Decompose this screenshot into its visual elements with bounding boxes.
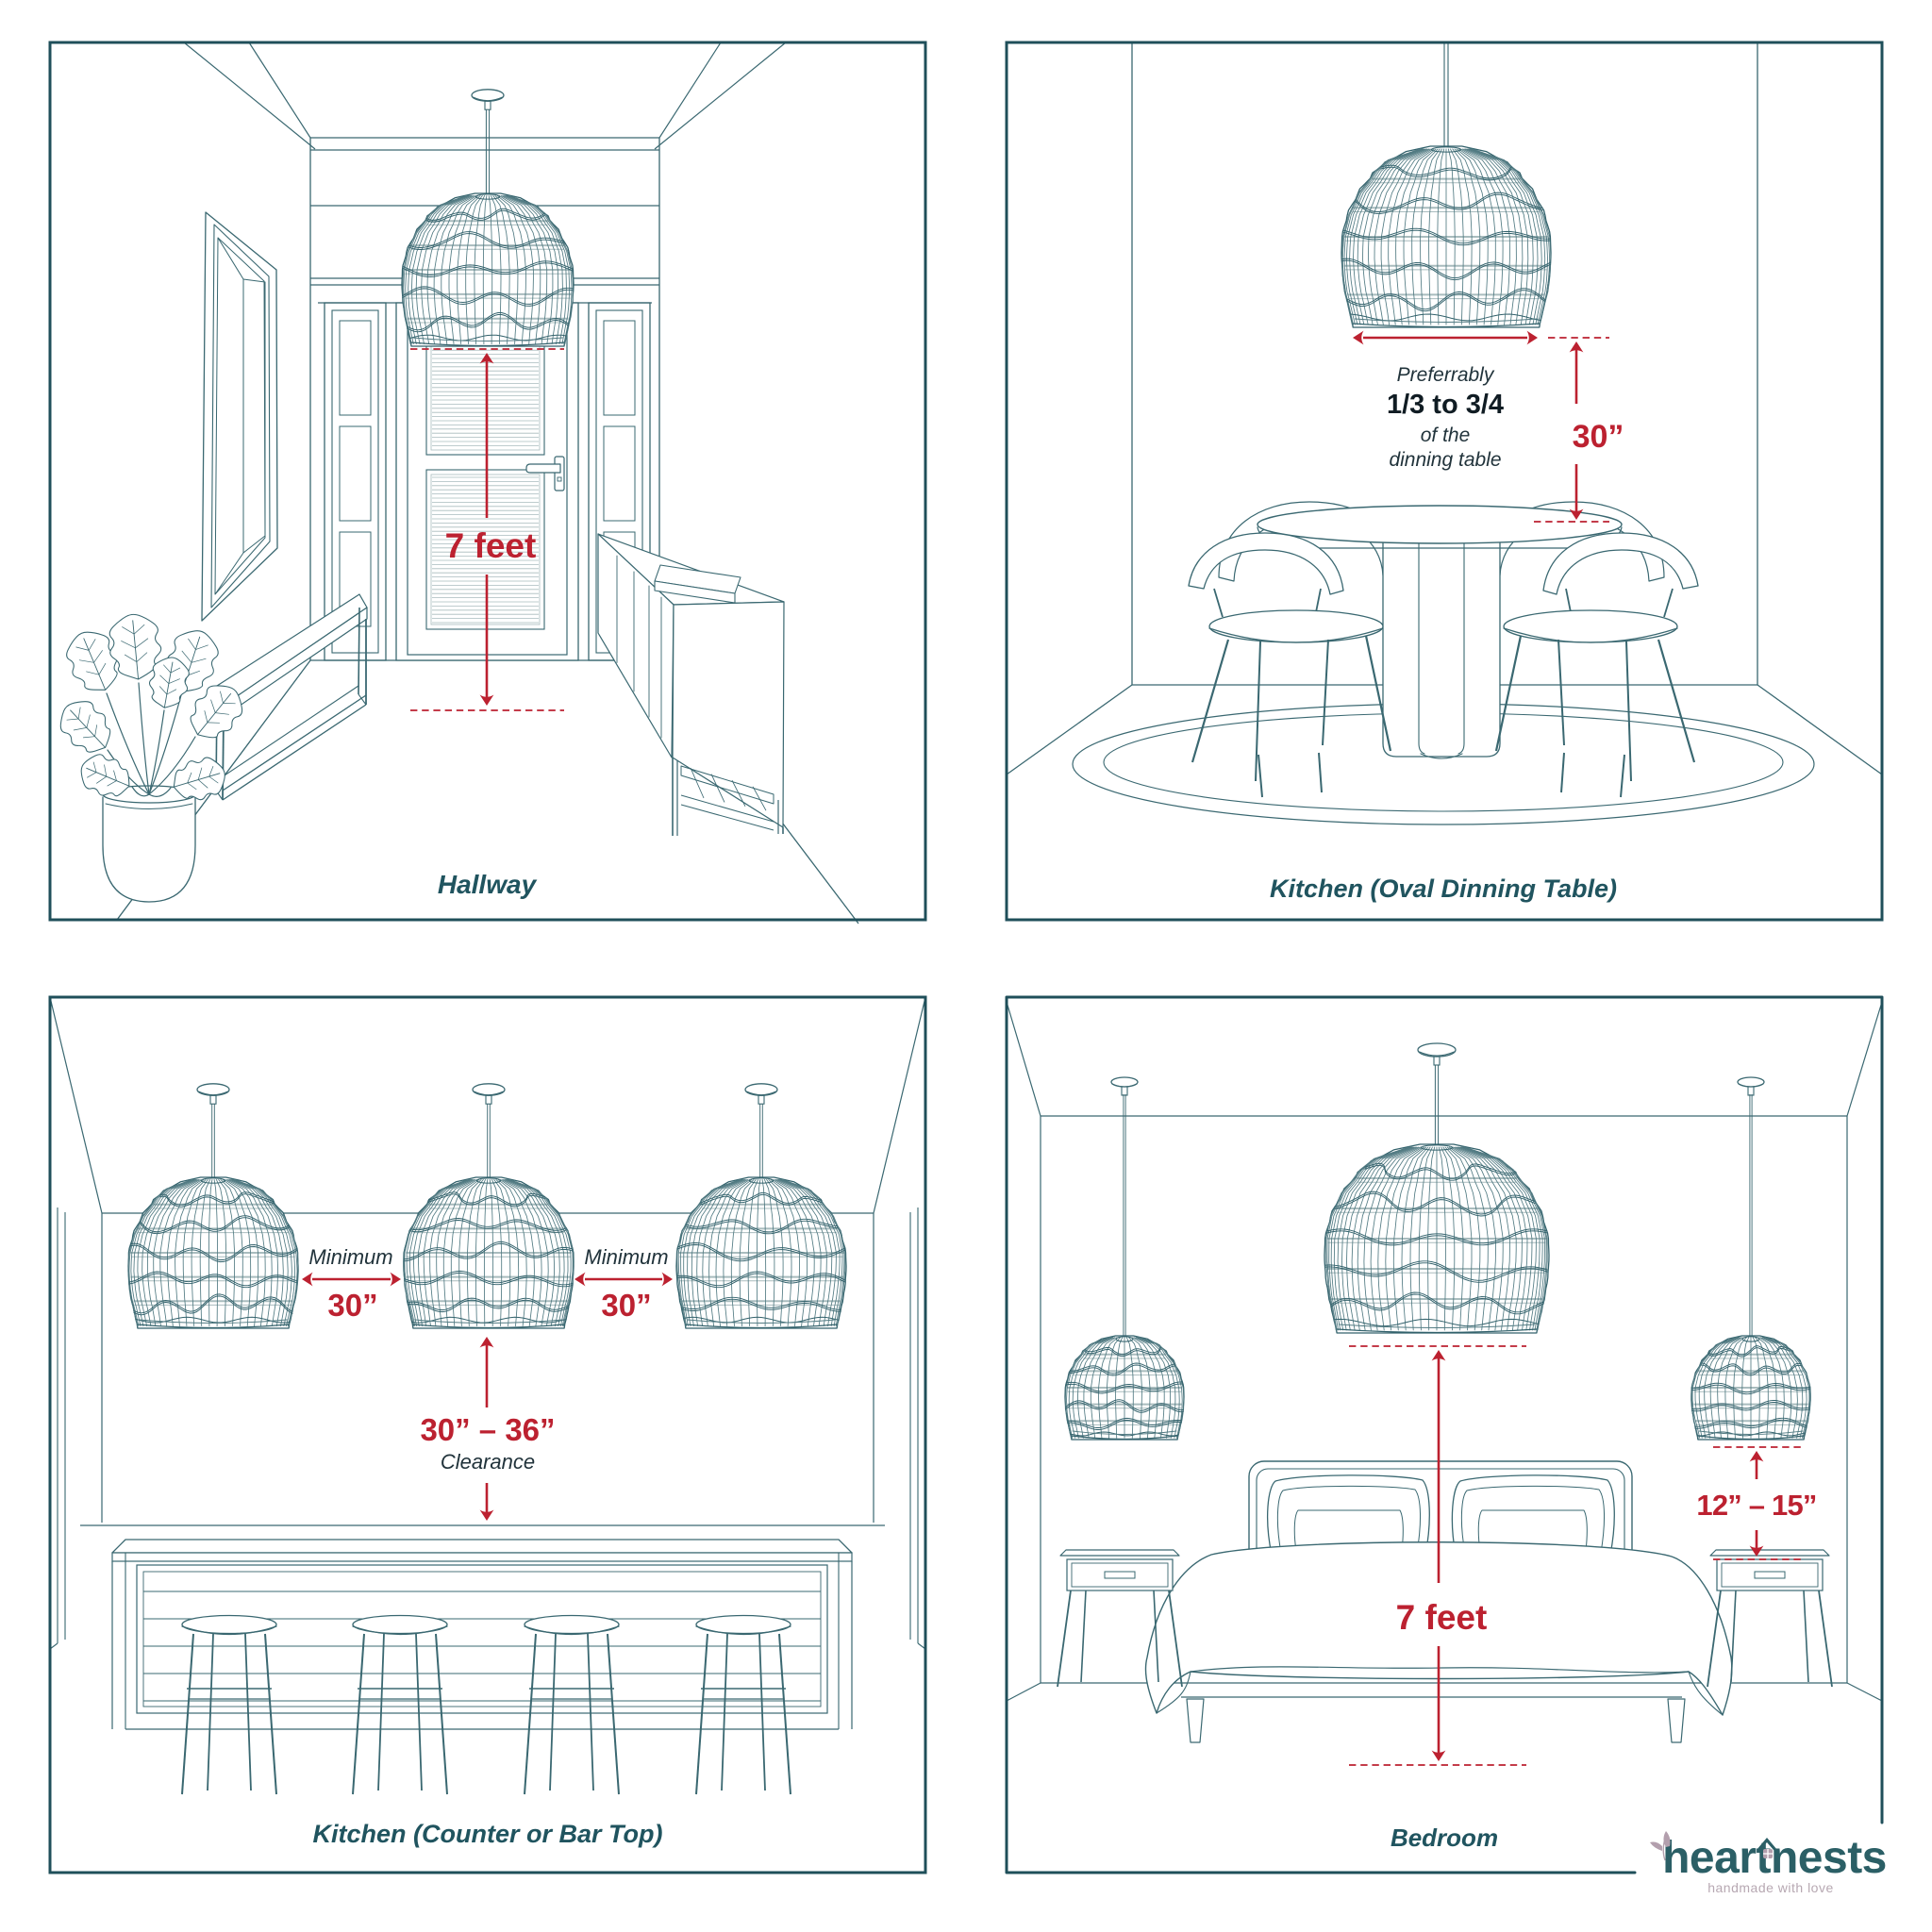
svg-text:dinning table: dinning table	[1389, 449, 1501, 471]
svg-text:1/3 to 3/4: 1/3 to 3/4	[1387, 390, 1504, 420]
svg-text:Minimum: Minimum	[584, 1245, 668, 1269]
svg-text:Preferrably: Preferrably	[1397, 364, 1495, 386]
svg-text:of the: of the	[1421, 425, 1471, 446]
svg-text:30” – 36”: 30” – 36”	[420, 1412, 555, 1447]
svg-text:handmade with love: handmade with love	[1707, 1880, 1834, 1895]
svg-text:Minimum: Minimum	[308, 1245, 392, 1269]
svg-text:heartnests: heartnests	[1662, 1833, 1887, 1883]
svg-text:Bedroom: Bedroom	[1391, 1824, 1498, 1852]
svg-text:30”: 30”	[327, 1288, 377, 1323]
svg-text:30”: 30”	[1573, 419, 1624, 455]
svg-text:7 feet: 7 feet	[1396, 1598, 1488, 1637]
svg-text:12” – 15”: 12” – 15”	[1696, 1489, 1816, 1522]
svg-text:Kitchen (Oval Dinning Table): Kitchen (Oval Dinning Table)	[1270, 874, 1617, 903]
svg-text:30”: 30”	[601, 1288, 651, 1323]
svg-text:Clearance: Clearance	[441, 1450, 535, 1474]
svg-text:7 feet: 7 feet	[445, 526, 537, 565]
svg-text:Hallway: Hallway	[438, 870, 538, 899]
svg-text:Kitchen (Counter or Bar Top): Kitchen (Counter or Bar Top)	[313, 1820, 663, 1848]
